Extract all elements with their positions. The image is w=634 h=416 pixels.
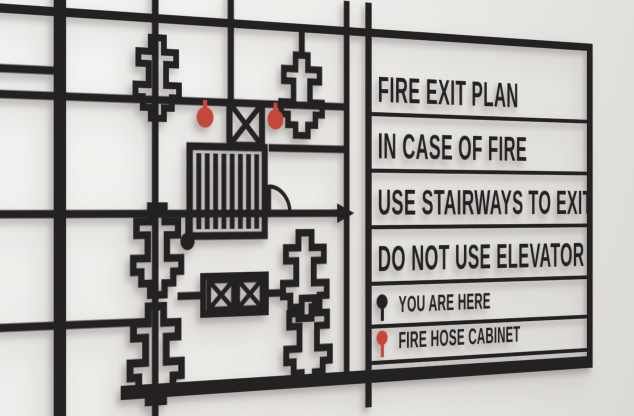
fire-hose-legend-pin-icon (377, 330, 388, 345)
message-row-1: FIRE EXIT PLAN (372, 59, 587, 123)
sign-body: FIRE EXIT PLAN IN CASE OF FIRE USE STAIR… (0, 0, 610, 416)
message-line-3: USE STAIRWAYS TO EXIT (378, 186, 593, 221)
wall-photo: FIRE EXIT PLAN IN CASE OF FIRE USE STAIR… (0, 0, 634, 416)
floor-plan (0, 0, 365, 416)
message-line-4: DO NOT USE ELEVATOR (378, 239, 585, 277)
legend-label-you-are-here: YOU ARE HERE (399, 291, 491, 317)
elevator-symbol-bottom-2 (238, 279, 262, 309)
door-swing-symbol (269, 185, 290, 214)
legend-label-fire-hose: FIRE HOSE CABINET (399, 324, 521, 353)
elevator-symbol-top (229, 103, 262, 146)
you-are-here-legend-pin-icon (377, 294, 388, 309)
message-line-1: FIRE EXIT PLAN (378, 73, 519, 114)
stairs-symbol (190, 146, 265, 236)
message-line-2: IN CASE OF FIRE (378, 129, 527, 167)
message-panel: FIRE EXIT PLAN IN CASE OF FIRE USE STAIR… (372, 59, 587, 365)
message-row-3: USE STAIRWAYS TO EXIT (372, 173, 587, 230)
message-row-4: DO NOT USE ELEVATOR (372, 227, 587, 286)
message-row-2: IN CASE OF FIRE (372, 116, 587, 175)
exit-plan-sign: FIRE EXIT PLAN IN CASE OF FIRE USE STAIR… (0, 0, 610, 416)
legend: YOU ARE HERE FIRE HOSE CABINET (372, 285, 587, 365)
